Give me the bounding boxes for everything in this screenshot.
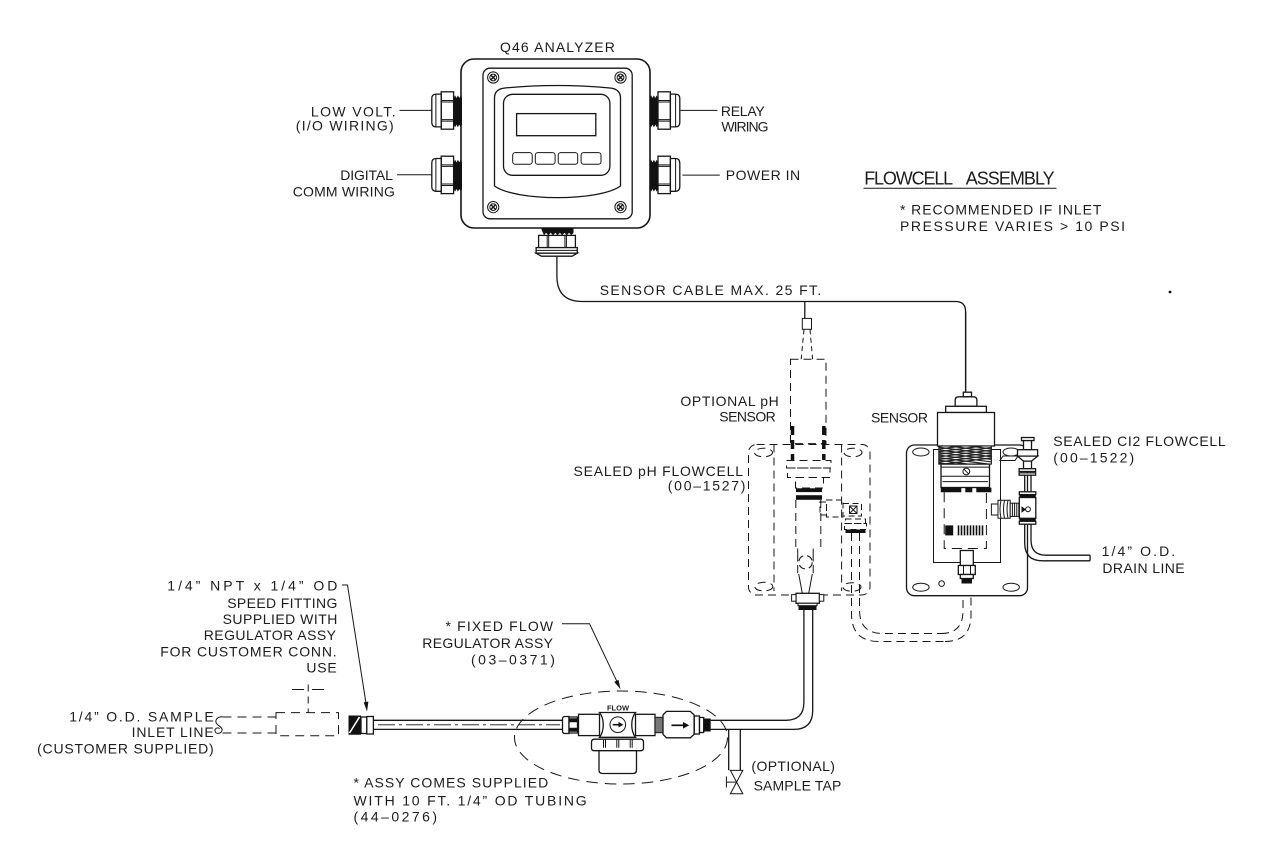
svg-text:SENSOR: SENSOR (719, 409, 776, 425)
svg-text:1/4” O.D. SAMPLE: 1/4” O.D. SAMPLE (69, 709, 214, 725)
svg-text:(I/O WIRING): (I/O WIRING) (296, 118, 394, 134)
svg-text:WIRING: WIRING (721, 119, 768, 135)
svg-text:DIGITAL: DIGITAL (340, 167, 393, 183)
svg-text:OPTIONAL pH: OPTIONAL pH (680, 393, 778, 409)
svg-text:* FIXED FLOW: * FIXED FLOW (446, 618, 554, 634)
svg-text:DRAIN LINE: DRAIN LINE (1102, 560, 1184, 576)
svg-text:(00–1527): (00–1527) (668, 478, 746, 494)
svg-text:SEALED CI2 FLOWCELL: SEALED CI2 FLOWCELL (1053, 433, 1226, 449)
svg-text:INLET LINE: INLET LINE (132, 724, 214, 740)
svg-text:USE: USE (306, 659, 336, 675)
svg-text:RELAY: RELAY (721, 103, 765, 119)
svg-text:FLOW: FLOW (607, 704, 630, 713)
svg-text:SENSOR CABLE MAX. 25 FT.: SENSOR CABLE MAX. 25 FT. (600, 282, 822, 298)
svg-text:(OPTIONAL): (OPTIONAL) (751, 758, 835, 774)
svg-text:(03–0371): (03–0371) (471, 652, 555, 668)
svg-text:FLOWCELL: FLOWCELL (864, 169, 953, 189)
svg-text:REGULATOR ASSY: REGULATOR ASSY (422, 635, 553, 651)
svg-text:REGULATOR ASSY: REGULATOR ASSY (204, 627, 337, 643)
svg-text:* ASSY COMES SUPPLIED: * ASSY COMES SUPPLIED (354, 775, 549, 791)
svg-text:(CUSTOMER SUPPLIED): (CUSTOMER SUPPLIED) (37, 741, 214, 757)
svg-text:COMM WIRING: COMM WIRING (293, 183, 395, 199)
svg-text:* RECOMMENDED IF INLET: * RECOMMENDED IF INLET (900, 201, 1102, 217)
svg-text:FOR CUSTOMER CONN.: FOR CUSTOMER CONN. (160, 643, 337, 659)
svg-text:(44–0276): (44–0276) (354, 809, 438, 825)
svg-text:SAMPLE TAP: SAMPLE TAP (754, 778, 842, 794)
svg-text:SPEED FITTING: SPEED FITTING (227, 595, 337, 611)
svg-text:ASSEMBLY: ASSEMBLY (966, 169, 1055, 189)
svg-text:(00–1522): (00–1522) (1053, 450, 1134, 466)
svg-text:SENSOR: SENSOR (871, 410, 928, 426)
svg-text:WITH 10 FT. 1/4” OD TUBING: WITH 10 FT. 1/4” OD TUBING (354, 793, 587, 809)
svg-text:PRESSURE VARIES > 10 PSI: PRESSURE VARIES > 10 PSI (900, 218, 1125, 234)
svg-text:POWER IN: POWER IN (726, 167, 800, 183)
svg-text:SUPPLIED WITH: SUPPLIED WITH (223, 611, 338, 627)
svg-text:Q46 ANALYZER: Q46 ANALYZER (500, 39, 615, 55)
